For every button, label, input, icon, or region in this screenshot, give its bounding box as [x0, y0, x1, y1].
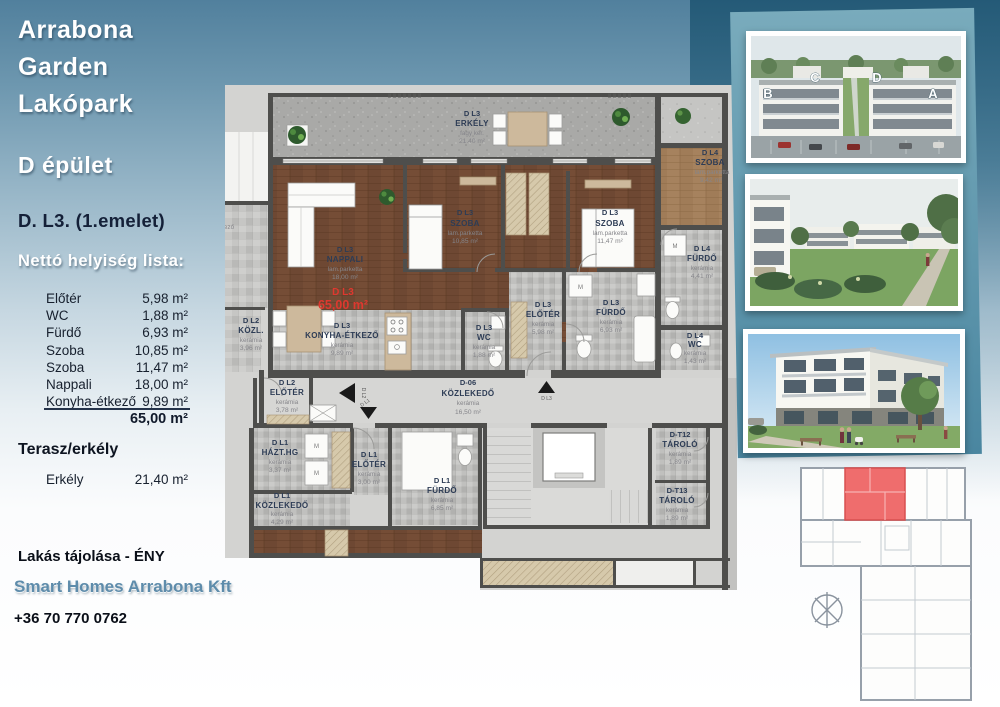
svg-text:D L3: D L3: [464, 109, 480, 118]
svg-text:D L3: D L3: [457, 208, 473, 217]
svg-text:1,88 m²: 1,88 m²: [473, 352, 496, 359]
brochure-page: Arrabona Garden Lakópark D épület D. L3.…: [0, 0, 1000, 707]
svg-text:kerámia: kerámia: [269, 459, 292, 466]
aerial-render-illustration: B C D A: [751, 36, 961, 158]
room-row: Szoba10,85 m²: [0, 342, 200, 359]
svg-text:D L3: D L3: [332, 287, 354, 298]
building-title: D épület: [18, 152, 113, 179]
svg-text:1,89 m²: 1,89 m²: [666, 515, 689, 522]
highlighted-unit: [845, 468, 905, 520]
svg-text:D L4: D L4: [702, 148, 719, 157]
svg-text:21.40 m²: 21.40 m²: [459, 138, 486, 145]
room-name: Előtér: [46, 290, 142, 307]
room-name: Nappali: [46, 376, 135, 393]
svg-text:kerámia: kerámia: [600, 319, 623, 326]
svg-text:D L2: D L2: [243, 316, 259, 325]
room-row: Szoba11,47 m²: [0, 359, 200, 376]
svg-text:lam.parketta: lam.parketta: [448, 230, 483, 237]
svg-text:KÖZL.: KÖZL.: [238, 326, 264, 335]
svg-text:4,41 m²: 4,41 m²: [691, 273, 714, 280]
svg-text:D L1: D L1: [272, 438, 288, 447]
svg-text:FÜRDŐ: FÜRDŐ: [596, 308, 626, 317]
svg-text:10,85 m²: 10,85 m²: [452, 238, 479, 245]
svg-text:9,42 m²: 9,42 m²: [700, 177, 723, 184]
room-row: Fürdő6,93 m²: [0, 324, 200, 341]
svg-text:TÁROLÓ: TÁROLÓ: [659, 496, 695, 505]
room-area: 6,93 m²: [142, 324, 188, 341]
svg-text:FÜRDŐ: FÜRDŐ: [427, 486, 457, 495]
floor-plan: M M M M: [225, 85, 737, 641]
svg-text:SZOBA: SZOBA: [450, 219, 480, 228]
svg-text:M: M: [314, 471, 319, 477]
company-name: Smart Homes Arrabona Kft: [14, 577, 232, 597]
svg-text:kerámia: kerámia: [666, 507, 689, 514]
svg-text:D L2: D L2: [279, 378, 295, 387]
doormat-icon: [267, 415, 309, 424]
render-photo-building: [743, 329, 965, 453]
svg-text:11,47 m²: 11,47 m²: [597, 238, 623, 245]
distant-buildings: [805, 224, 955, 249]
terrace-name: Erkély: [46, 471, 135, 488]
svg-text:9,89 m²: 9,89 m²: [331, 350, 354, 357]
svg-text:lam.parketta: lam.parketta: [695, 169, 730, 176]
room-area: 18,00 m²: [135, 376, 188, 393]
svg-text:KÖZLEKEDŐ: KÖZLEKEDŐ: [442, 389, 495, 398]
room-row: Nappali18,00 m²: [0, 376, 200, 393]
svg-text:ERKÉLY: ERKÉLY: [455, 119, 489, 128]
courtyard-render-illustration: [750, 179, 958, 306]
person-icon: [926, 253, 930, 266]
svg-text:WC: WC: [688, 340, 702, 349]
room-list-title: Nettó helyiség lista:: [18, 252, 184, 271]
svg-text:FÜRDŐ: FÜRDŐ: [687, 254, 717, 263]
room-name: WC: [46, 307, 142, 324]
terrace-area: 21,40 m²: [135, 471, 188, 488]
foreground-building-left: [750, 195, 790, 277]
svg-text:ELŐTÉR: ELŐTÉR: [270, 388, 304, 397]
apartment-block-right: [869, 80, 956, 136]
compass-icon: [812, 592, 842, 628]
svg-text:D L1: D L1: [434, 476, 450, 485]
car-icon: [748, 418, 764, 425]
svg-text:1,43 m²: 1,43 m²: [684, 358, 707, 365]
svg-text:D-T13: D-T13: [667, 486, 688, 495]
bed-icon: [409, 205, 442, 269]
room-list: Előtér5,98 m² WC1,88 m² Fürdő6,93 m² Szo…: [0, 290, 200, 410]
svg-text:D L4: D L4: [687, 331, 704, 340]
kitchen-counter-icon: [385, 313, 411, 370]
svg-text:D L3: D L3: [334, 321, 350, 330]
building-letter-d: D: [872, 70, 881, 85]
project-title-line1: Arrabona: [18, 12, 133, 49]
room-area: 5,98 m²: [142, 290, 188, 307]
building-letter-b: B: [763, 86, 772, 101]
svg-text:D L4: D L4: [694, 244, 711, 253]
svg-text:D L3: D L3: [535, 300, 551, 309]
svg-text:kerámia: kerámia: [684, 350, 707, 357]
shaft-icon: [310, 405, 336, 421]
render-photo-courtyard: [745, 174, 963, 311]
svg-text:3,00 m²: 3,00 m²: [358, 479, 381, 486]
svg-text:kerámia: kerámia: [240, 337, 263, 344]
svg-text:kerámia: kerámia: [271, 511, 294, 518]
svg-text:D L3: D L3: [337, 245, 353, 254]
svg-text:6,93 m²: 6,93 m²: [600, 327, 623, 334]
svg-text:16,50 m²: 16,50 m²: [455, 409, 482, 416]
room-area: 10,85 m²: [135, 342, 188, 359]
svg-text:D-T12: D-T12: [670, 430, 691, 439]
svg-text:kerámia: kerámia: [331, 342, 354, 349]
svg-text:ELŐTÉR: ELŐTÉR: [352, 460, 386, 469]
svg-text:kerámia: kerámia: [473, 344, 496, 351]
svg-text:4,29 m²: 4,29 m²: [271, 519, 294, 526]
svg-text:3,96 m²: 3,96 m²: [240, 345, 263, 352]
svg-text:1,89 m²: 1,89 m²: [669, 459, 692, 466]
svg-text:5,98 m²: 5,98 m²: [532, 329, 555, 336]
svg-text:kerámia: kerámia: [691, 265, 714, 272]
total-area: 65,00 m²: [0, 411, 188, 427]
unit-title: D. L3. (1.emelet): [18, 210, 165, 232]
svg-text:18,00 m²: 18,00 m²: [332, 274, 359, 281]
room-name: Fürdő: [46, 324, 142, 341]
svg-text:HÁZT.HG: HÁZT.HG: [262, 448, 299, 457]
svg-text:D L3: D L3: [602, 208, 618, 217]
terrace-row: Erkély21,40 m²: [0, 471, 200, 488]
svg-text:M: M: [314, 444, 319, 450]
orientation-note: Lakás tájolása - ÉNY: [18, 548, 165, 565]
svg-text:kerámia: kerámia: [276, 399, 299, 406]
svg-text:lam.parketta: lam.parketta: [328, 266, 363, 273]
svg-text:WC: WC: [477, 333, 491, 342]
svg-text:D L1: D L1: [361, 450, 377, 459]
key-plan: [793, 462, 998, 705]
project-title-line2: Garden: [18, 49, 133, 86]
room-row: WC1,88 m²: [0, 307, 200, 324]
svg-text:NAPPALI: NAPPALI: [327, 255, 364, 264]
svg-text:kerámia: kerámia: [431, 497, 454, 504]
svg-text:lam.parketta: lam.parketta: [593, 230, 628, 237]
svg-text:SZOBA: SZOBA: [695, 158, 725, 167]
room-row: Előtér5,98 m²: [0, 290, 200, 307]
svg-text:6,85 m²: 6,85 m²: [431, 505, 454, 512]
bush-icon: [749, 425, 767, 435]
render-photo-aerial: B C D A: [746, 31, 966, 163]
svg-text:ELŐTÉR: ELŐTÉR: [526, 310, 560, 319]
partial-neighbor-label: ező: [225, 224, 235, 231]
terrace-title: Terasz/erkély: [18, 441, 118, 459]
total-divider: [44, 408, 190, 410]
svg-text:KÖZLEKEDŐ: KÖZLEKEDŐ: [256, 501, 309, 510]
svg-text:3,37 m²: 3,37 m²: [269, 467, 292, 474]
svg-text:kerámia: kerámia: [457, 400, 480, 407]
room-area: 1,88 m²: [142, 307, 188, 324]
svg-text:D L2: D L2: [360, 388, 366, 399]
svg-text:TÁROLÓ: TÁROLÓ: [662, 440, 698, 449]
svg-text:D-06: D-06: [460, 378, 476, 387]
room-name: Szoba: [46, 359, 136, 376]
svg-text:D L3: D L3: [476, 323, 492, 332]
svg-text:KONYHA-ÉTKEZŐ: KONYHA-ÉTKEZŐ: [305, 331, 379, 340]
svg-text:fagy ker.: fagy ker.: [460, 130, 484, 137]
svg-text:kerámia: kerámia: [358, 471, 381, 478]
svg-text:kerámia: kerámia: [532, 321, 555, 328]
svg-text:65,00 m²: 65,00 m²: [318, 298, 368, 312]
building-render-illustration: [748, 334, 960, 448]
room-area: 11,47 m²: [136, 359, 188, 376]
svg-text:kerámia: kerámia: [669, 451, 692, 458]
building-letter-a: A: [928, 86, 938, 101]
svg-text:SZOBA: SZOBA: [595, 219, 625, 228]
svg-text:3,78 m²: 3,78 m²: [276, 407, 299, 414]
svg-text:M: M: [578, 285, 583, 291]
building-letter-c: C: [810, 70, 820, 85]
svg-text:M: M: [673, 244, 678, 250]
svg-text:D L1: D L1: [274, 491, 290, 500]
svg-text:D L3: D L3: [541, 396, 552, 402]
project-title-line3: Lakópark: [18, 86, 133, 123]
phone-number: +36 70 770 0762: [14, 610, 127, 627]
project-title: Arrabona Garden Lakópark: [18, 12, 133, 123]
svg-text:D L3: D L3: [603, 298, 619, 307]
room-name: Szoba: [46, 342, 135, 359]
